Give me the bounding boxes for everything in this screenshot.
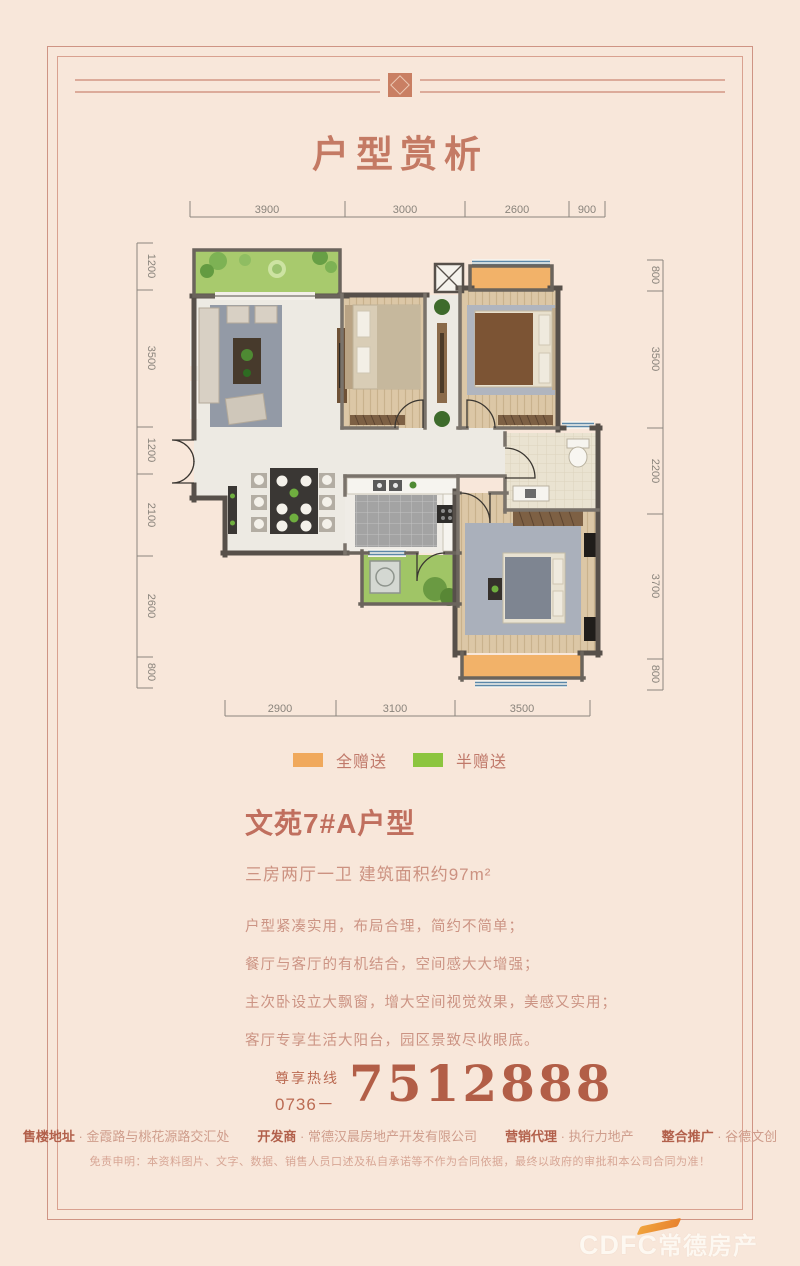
bay-window-bottom (462, 655, 582, 678)
dim-label: 2600 (505, 204, 529, 216)
half-gift-swatch (413, 753, 443, 767)
dim-label: 2600 (145, 594, 157, 618)
dim-label: 900 (578, 204, 596, 216)
footer-info: 售楼地址 · 金霞路与桃花源路交汇处 开发商 · 常德汉晨房地产开发有限公司 营… (60, 1126, 740, 1145)
half-gift-label: 半赠送 (456, 748, 507, 772)
hallway (345, 428, 505, 476)
dim-label: 3100 (383, 703, 407, 715)
master-bedroom-furniture (465, 511, 598, 641)
hotline: 尊享热线 0736－ 7512888 (275, 1058, 614, 1115)
full-gift-label: 全赠送 (336, 748, 387, 772)
ornament-line (420, 91, 725, 93)
footer-label: 整合推广 (662, 1129, 714, 1144)
brand-logo: CDFC 常德房产 (579, 1226, 758, 1261)
hotline-area-code: 0736－ (275, 1090, 339, 1115)
hotline-label: 尊享热线 (275, 1068, 339, 1088)
feature-line: 餐厅与客厅的有机结合，空间感大大增强； (245, 946, 617, 984)
bay-window-top (470, 266, 552, 290)
hotline-number: 7512888 (349, 1058, 614, 1110)
dim-label: 1200 (145, 254, 157, 278)
floorplan-svg: 3900 3000 2600 900 2900 3100 3500 1200 3… (115, 193, 685, 738)
ornament-square-icon (388, 73, 412, 97)
page-title: 户型赏析 (0, 124, 800, 178)
floorplan: 3900 3000 2600 900 2900 3100 3500 1200 3… (115, 193, 685, 738)
dim-label: 2100 (145, 503, 157, 527)
dim-label: 3000 (393, 204, 417, 216)
disclaimer: 免责申明：本资料图片、文字、数据、销售人员口述及私自承诺等不作为合同依据，最终以… (0, 1153, 800, 1169)
footer-value: 谷德文创 (725, 1129, 777, 1144)
room-service-balcony (362, 555, 458, 606)
sliding-door (215, 292, 315, 300)
footer-label: 营销代理 (505, 1129, 557, 1144)
legend-full-gift: 全赠送 (293, 748, 387, 772)
logo-text-en: CDFC (579, 1230, 658, 1261)
dim-label: 3500 (510, 703, 534, 715)
unit-features: 户型紧凑实用，布局合理，简约不简单； 餐厅与客厅的有机结合，空间感大大增强； 主… (245, 908, 617, 1060)
unit-name: 文苑7#A户型 (245, 802, 415, 842)
footer-item-developer: 开发商 · 常德汉晨房地产开发有限公司 (257, 1126, 477, 1145)
ornament-line (420, 79, 725, 81)
dim-label: 3500 (145, 346, 157, 370)
footer-label: 售楼地址 (23, 1129, 75, 1144)
logo-text-cn: 常德房产 (658, 1226, 758, 1261)
room-balcony-living (194, 249, 340, 296)
footer-item-promotion: 整合推广 · 谷德文创 (662, 1126, 778, 1145)
footer-value: 金霞路与桃花源路交汇处 (86, 1129, 229, 1144)
footer-label: 开发商 (257, 1129, 296, 1144)
poster-page: { "page": { "title": "户型赏析" }, "floorpla… (0, 0, 800, 1266)
dim-label: 800 (145, 663, 157, 681)
dim-label: 3500 (649, 347, 661, 371)
dim-label: 2200 (649, 459, 661, 483)
ornament-line (75, 79, 380, 81)
dim-label: 800 (649, 665, 661, 683)
feature-line: 户型紧凑实用，布局合理，简约不简单； (245, 908, 617, 946)
ornament-line (75, 91, 380, 93)
footer-item-address: 售楼地址 · 金霞路与桃花源路交汇处 (23, 1126, 230, 1145)
hotline-labels: 尊享热线 0736－ (275, 1068, 339, 1115)
dim-label: 3700 (649, 574, 661, 598)
full-gift-swatch (293, 753, 323, 767)
dim-label: 800 (649, 266, 661, 284)
feature-line: 主次卧设立大飘窗，增大空间视觉效果，美感又实用； (245, 984, 617, 1022)
footer-value: 常德汉晨房地产开发有限公司 (308, 1129, 477, 1144)
footer-item-agency: 营销代理 · 执行力地产 (505, 1126, 634, 1145)
unit-spec: 三房两厅一卫 建筑面积约97m² (245, 860, 491, 885)
footer-value: 执行力地产 (569, 1129, 634, 1144)
legend: 全赠送 半赠送 (0, 748, 800, 772)
legend-half-gift: 半赠送 (413, 748, 507, 772)
dim-label: 3900 (255, 204, 279, 216)
dim-label: 2900 (268, 703, 292, 715)
dim-label: 1200 (145, 438, 157, 462)
